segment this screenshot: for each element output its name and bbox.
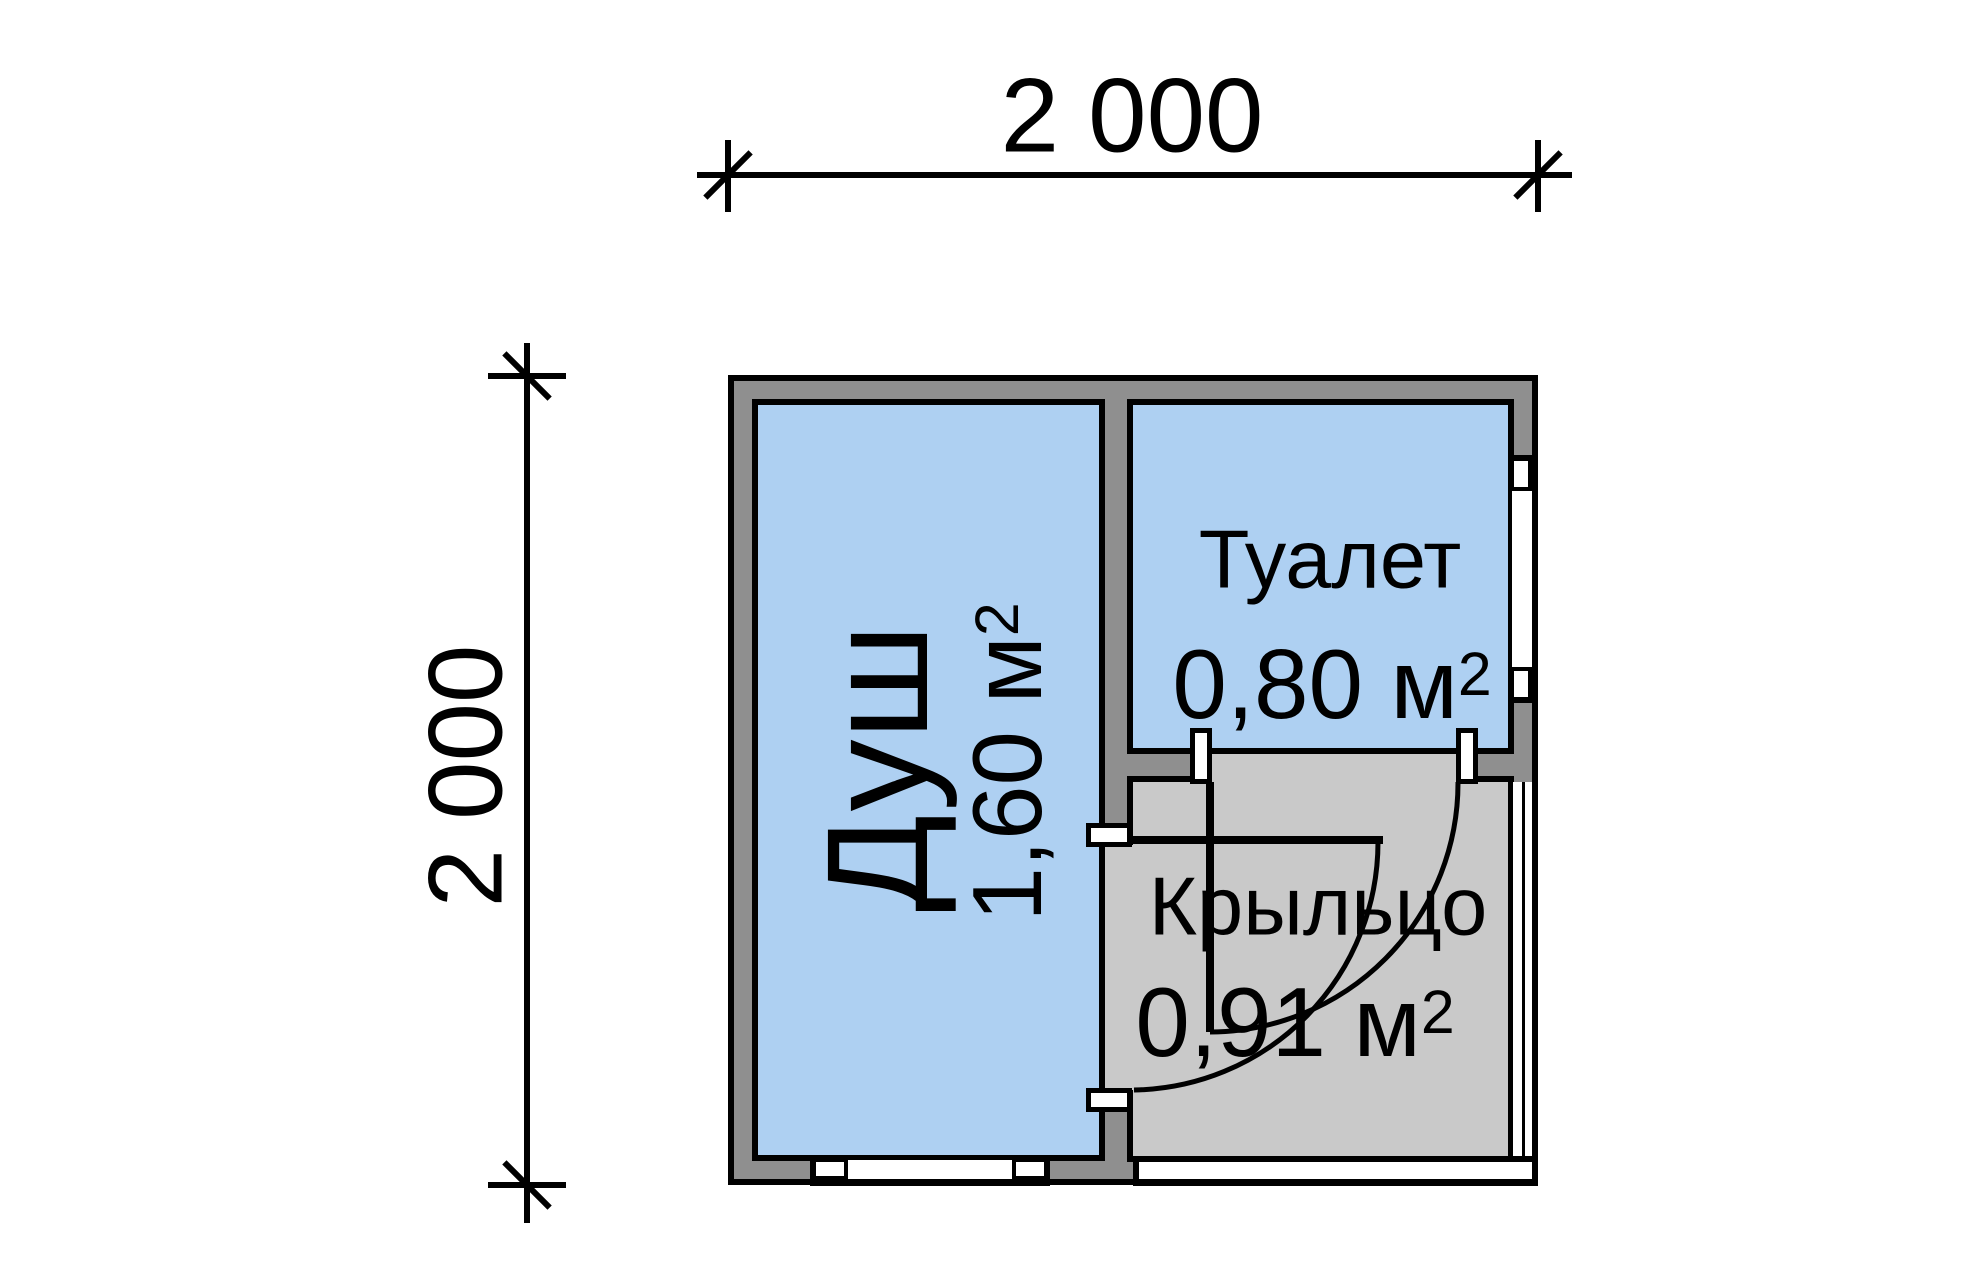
shower-door-opening	[1105, 845, 1133, 1090]
room-label-shower: Душ	[806, 624, 950, 912]
porch-edge-right	[1508, 782, 1538, 1156]
toilet-window	[1508, 455, 1538, 703]
area-label-shower: 1,60м2	[958, 602, 1056, 921]
porch-edge-right-rail	[1522, 782, 1525, 1156]
shower-door-jamb-bottom	[1086, 1088, 1132, 1112]
area-sup-shower: 2	[963, 602, 1031, 636]
toilet-window-frame-top	[1510, 457, 1532, 491]
area-unit-toilet: м	[1391, 629, 1458, 739]
area-value-shower: 1,60	[952, 731, 1062, 922]
shower-window	[810, 1156, 1050, 1186]
toilet-door-jamb-right	[1456, 728, 1478, 784]
area-value-porch: 0,91	[1135, 967, 1326, 1077]
area-value-toilet: 0,80	[1172, 629, 1363, 739]
dimension-label-left: 2 000	[414, 645, 519, 908]
area-sup-toilet: 2	[1458, 640, 1492, 708]
room-label-porch: Крыльцо	[1149, 865, 1488, 948]
toilet-window-frame-bottom	[1510, 667, 1532, 701]
room-label-toilet: Туалет	[1199, 518, 1462, 601]
shower-window-frame-right	[1012, 1158, 1048, 1180]
shower-window-frame-left	[812, 1158, 848, 1180]
area-unit-porch: м	[1354, 967, 1421, 1077]
area-label-porch: 0,91м2	[1135, 973, 1454, 1071]
area-unit-shower: м	[952, 636, 1062, 703]
dimension-label-top: 2 000	[1001, 64, 1264, 169]
shower-door-leaf	[1130, 836, 1383, 844]
area-sup-porch: 2	[1421, 978, 1455, 1046]
porch-edge-bottom	[1133, 1156, 1538, 1186]
floor-plan-page: 2 000 2 000	[0, 0, 1978, 1272]
area-label-toilet: 0,80м2	[1172, 635, 1491, 733]
dimension-line-left	[524, 343, 530, 1223]
shower-door-jamb-top	[1086, 823, 1132, 847]
toilet-door-opening	[1210, 754, 1458, 782]
